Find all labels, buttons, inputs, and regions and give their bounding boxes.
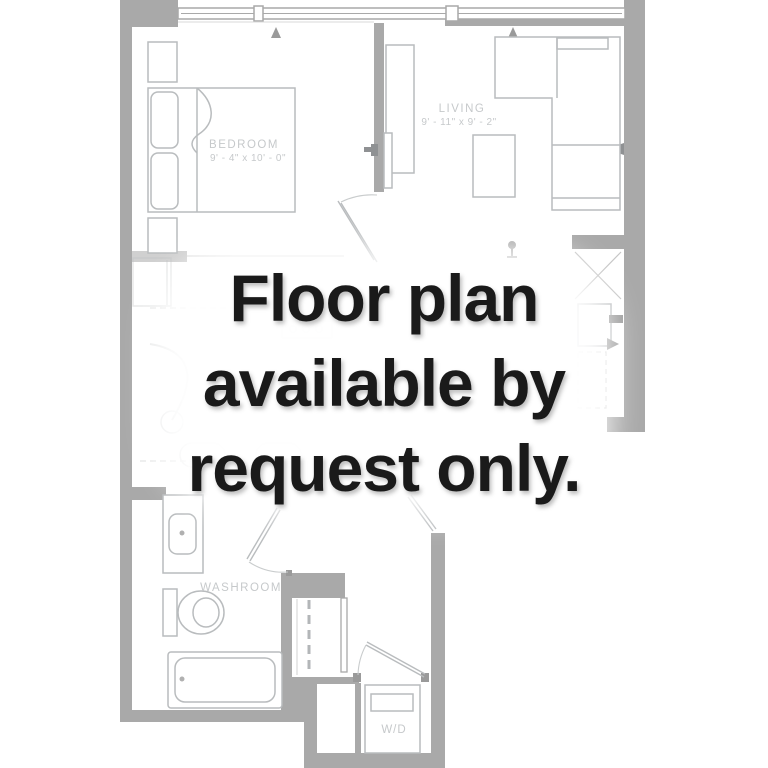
coffee-table bbox=[473, 135, 515, 197]
overlay-line-3: request only. bbox=[0, 426, 768, 511]
washroom-door-leaf bbox=[247, 508, 277, 559]
laundry-closet bbox=[365, 685, 420, 753]
living-dims: 9' - 11" x 9' - 2" bbox=[421, 117, 496, 128]
ceiling-markers bbox=[271, 27, 518, 38]
pivot-block bbox=[421, 673, 429, 682]
wall-hall-block bbox=[292, 573, 345, 598]
floor-plan-image: BEDROOM 9' - 4" x 10' - 0" LIVING 9' - 1… bbox=[0, 0, 768, 768]
pivot-block bbox=[353, 673, 361, 682]
wall-bedroom-divider bbox=[374, 23, 384, 192]
wall-closet-top bbox=[572, 235, 624, 249]
faucet-dot bbox=[180, 531, 185, 536]
laundry-door-leaf bbox=[367, 642, 425, 674]
hall-closet bbox=[297, 598, 347, 675]
window-mullion bbox=[254, 6, 263, 21]
overlay-line-1: Floor plan bbox=[0, 256, 768, 341]
nightstand bbox=[148, 218, 177, 253]
washroom-door-arc bbox=[249, 562, 288, 572]
switch-mark bbox=[364, 147, 371, 152]
bedroom-door-arc bbox=[341, 195, 377, 202]
washer-dryer-unit bbox=[365, 685, 420, 753]
bedroom-label: BEDROOM bbox=[209, 139, 279, 151]
laundry-door-arc bbox=[358, 645, 366, 675]
closet-right-wall bbox=[341, 598, 347, 672]
washroom-door-leaf bbox=[250, 510, 280, 561]
laundry-door-leaf bbox=[366, 645, 424, 677]
wall-step-down bbox=[304, 710, 317, 768]
switch-mark bbox=[371, 144, 378, 156]
nightstand bbox=[148, 42, 177, 82]
washroom-fixtures bbox=[163, 495, 282, 708]
wall-wd-top bbox=[317, 677, 359, 684]
bathtub bbox=[168, 652, 282, 708]
wall-bottom-hall bbox=[317, 753, 445, 768]
tv bbox=[384, 133, 392, 188]
window-band bbox=[178, 6, 625, 22]
window-mullion bbox=[446, 6, 458, 21]
bedroom-dims: 9' - 4" x 10' - 0" bbox=[210, 153, 286, 164]
wall-wd-left bbox=[355, 683, 361, 755]
laundry-label: W/D bbox=[381, 724, 406, 736]
overlay-message: Floor plan available by request only. bbox=[0, 256, 768, 511]
drain-dot bbox=[180, 677, 185, 682]
toilet-tank bbox=[163, 589, 177, 636]
toilet-bowl bbox=[178, 591, 224, 634]
pivot-block bbox=[286, 570, 292, 576]
living-label: LIVING bbox=[439, 103, 486, 115]
wall-right-lower bbox=[431, 533, 445, 768]
overlay-line-2: available by bbox=[0, 341, 768, 426]
sprinkler-marker-icon bbox=[271, 27, 281, 38]
media-wall bbox=[384, 45, 414, 188]
washroom-label: WASHROOM bbox=[200, 582, 282, 594]
